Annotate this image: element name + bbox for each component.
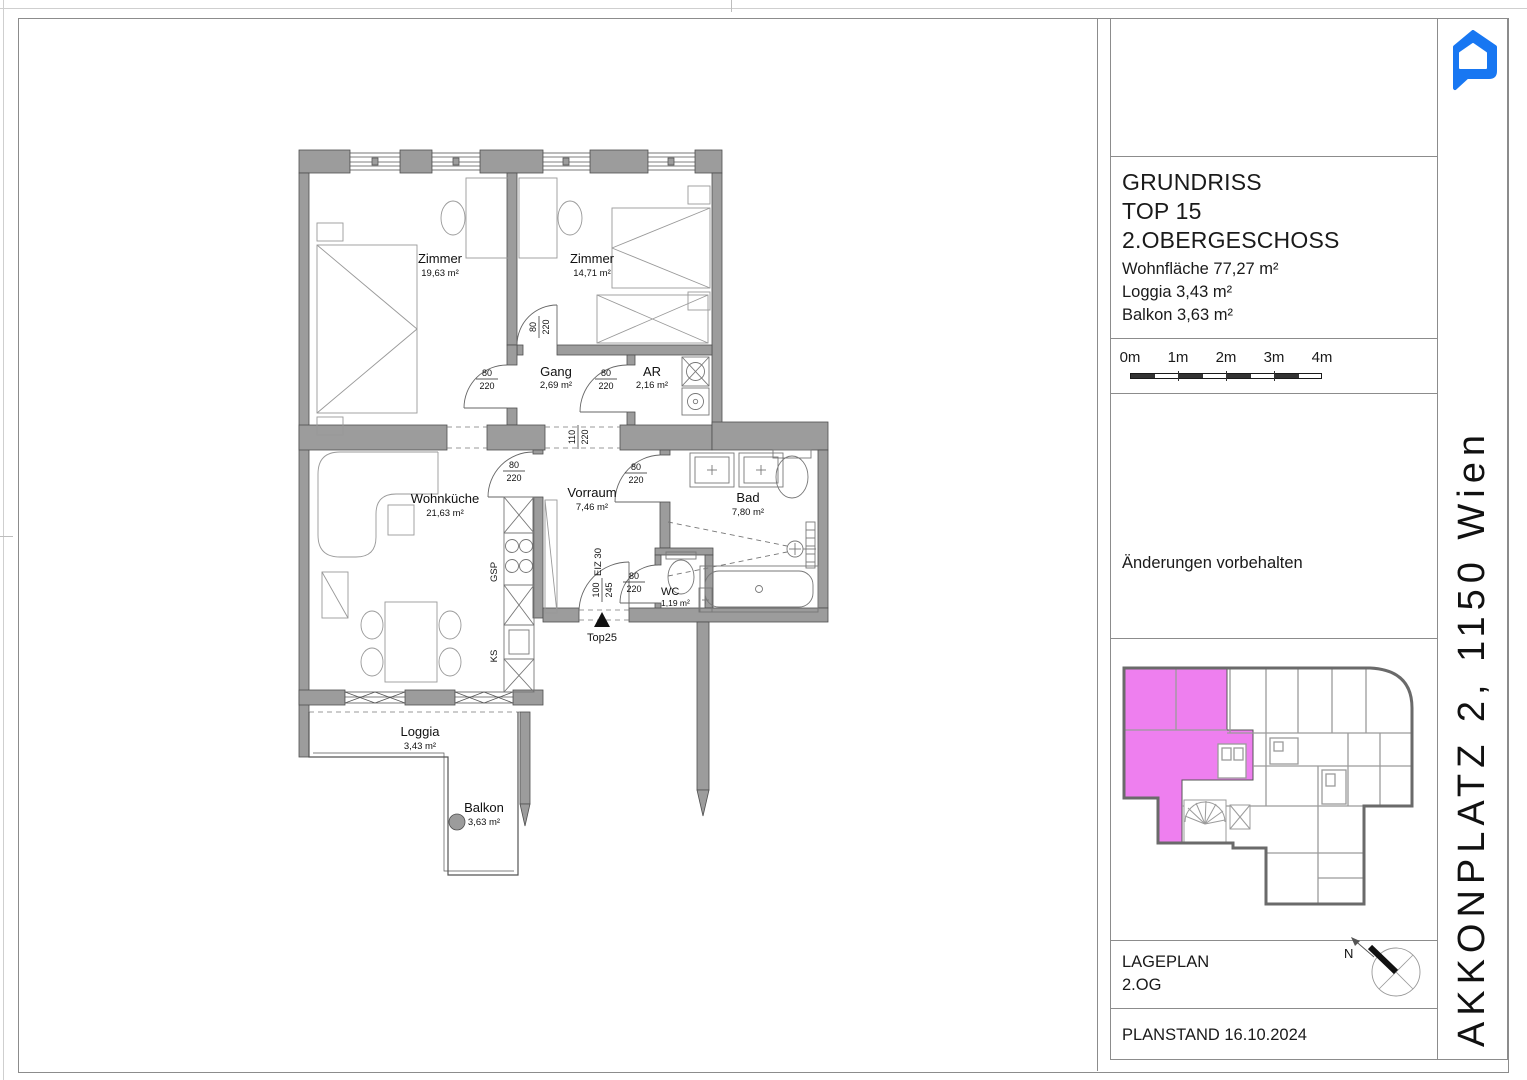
- svg-text:245: 245: [604, 582, 614, 597]
- section-divider: [1110, 156, 1437, 157]
- room-label: AR: [643, 364, 661, 379]
- floor-name: 2.OBERGESCHOSS: [1122, 226, 1340, 255]
- scale-tick-label: 3m: [1250, 349, 1298, 366]
- svg-text:80: 80: [482, 368, 492, 378]
- site-plan-title: LAGEPLAN: [1122, 951, 1209, 974]
- section-divider: [1110, 638, 1437, 639]
- project-address-strip: AKKONPLATZ 2, 1150 Wien: [1437, 325, 1508, 1047]
- living-area-line: Wohnfläche 77,27 m²: [1122, 258, 1279, 281]
- company-logo-icon: [1446, 30, 1500, 92]
- area-summary: Wohnfläche 77,27 m² Loggia 3,43 m² Balko…: [1122, 258, 1279, 327]
- section-divider: [1110, 338, 1437, 339]
- room-label: WC: [661, 586, 679, 598]
- balcony-column: [449, 814, 465, 830]
- unit-number: TOP 15: [1122, 197, 1340, 226]
- room-area: 3,43 m²: [404, 741, 436, 752]
- svg-text:220: 220: [541, 319, 551, 334]
- svg-text:80: 80: [601, 368, 611, 378]
- svg-text:80: 80: [629, 571, 639, 581]
- north-label: N: [1344, 946, 1353, 961]
- room-label: Balkon: [464, 800, 504, 815]
- loggia-area-line: Loggia 3,43 m²: [1122, 281, 1279, 304]
- svg-text:220: 220: [479, 381, 494, 391]
- plan-area-divider: [1097, 18, 1098, 1071]
- scale-tick-label: 0m: [1106, 349, 1154, 366]
- north-compass-icon: N: [1340, 936, 1430, 1011]
- room-area: 21,63 m²: [426, 508, 464, 519]
- plan-sheet: Top25 Zimmer 19,63 m² Zimmer 14,71 m² Ga…: [0, 0, 1527, 1080]
- svg-text:80: 80: [528, 322, 538, 332]
- room-label: Gang: [540, 364, 572, 379]
- svg-text:80: 80: [631, 462, 641, 472]
- room-area: 3,63 m²: [468, 817, 500, 828]
- entry-door-type-label: EIZ 30: [593, 548, 604, 576]
- dashed-openings: [309, 427, 629, 712]
- room-label: Wohnküche: [411, 491, 479, 506]
- disclaimer-note: Änderungen vorbehalten: [1122, 554, 1303, 573]
- svg-text:220: 220: [506, 473, 521, 483]
- room-label: Zimmer: [570, 251, 615, 266]
- svg-text:110: 110: [567, 430, 577, 444]
- title-block: GRUNDRISS TOP 15 2.OBERGESCHOSS: [1122, 168, 1340, 255]
- dishwasher-label: GSP: [489, 562, 500, 582]
- plan-type: GRUNDRISS: [1122, 168, 1340, 197]
- room-label: Loggia: [400, 724, 440, 739]
- scale-tick-label: 1m: [1154, 349, 1202, 366]
- room-area: 2,16 m²: [636, 380, 668, 391]
- room-labels: Zimmer 19,63 m² Zimmer 14,71 m² Gang 2,6…: [400, 251, 764, 828]
- room-label: Bad: [736, 490, 759, 505]
- room-area: 1,19 m²: [661, 598, 690, 608]
- room-area: 7,46 m²: [576, 502, 608, 513]
- room-area: 2,69 m²: [540, 380, 572, 391]
- entrance-marker-icon: [594, 612, 610, 627]
- door-dimension-labels: 80220 80220 80220 110220 80220 80220 802…: [476, 316, 647, 602]
- svg-text:220: 220: [628, 475, 643, 485]
- room-area: 19,63 m²: [421, 268, 459, 279]
- svg-text:80: 80: [509, 460, 519, 470]
- room-label: Zimmer: [418, 251, 463, 266]
- room-label: Vorraum: [567, 485, 616, 500]
- scale-bar: [1130, 373, 1322, 379]
- svg-text:220: 220: [598, 381, 613, 391]
- room-area: 14,71 m²: [573, 268, 611, 279]
- room-area: 7,80 m²: [732, 507, 764, 518]
- plan-status-line: PLANSTAND 16.10.2024: [1122, 1026, 1307, 1045]
- svg-text:220: 220: [626, 584, 641, 594]
- fridge-label: KS: [489, 650, 500, 663]
- svg-text:100: 100: [591, 582, 601, 597]
- section-divider: [1110, 393, 1437, 394]
- svg-text:220: 220: [580, 429, 590, 444]
- site-plan-caption: LAGEPLAN 2.OG: [1122, 951, 1209, 997]
- balcony-area-line: Balkon 3,63 m²: [1122, 304, 1279, 327]
- entrance-label: Top25: [587, 632, 617, 644]
- site-plan-map: [1118, 648, 1420, 936]
- floor-plan-drawing: Top25 Zimmer 19,63 m² Zimmer 14,71 m² Ga…: [0, 0, 1097, 1080]
- site-plan-floor: 2.OG: [1122, 974, 1209, 997]
- scale-tick-label: 4m: [1298, 349, 1346, 366]
- project-address: AKKONPLATZ 2, 1150 Wien: [1451, 429, 1494, 1047]
- scale-tick-label: 2m: [1202, 349, 1250, 366]
